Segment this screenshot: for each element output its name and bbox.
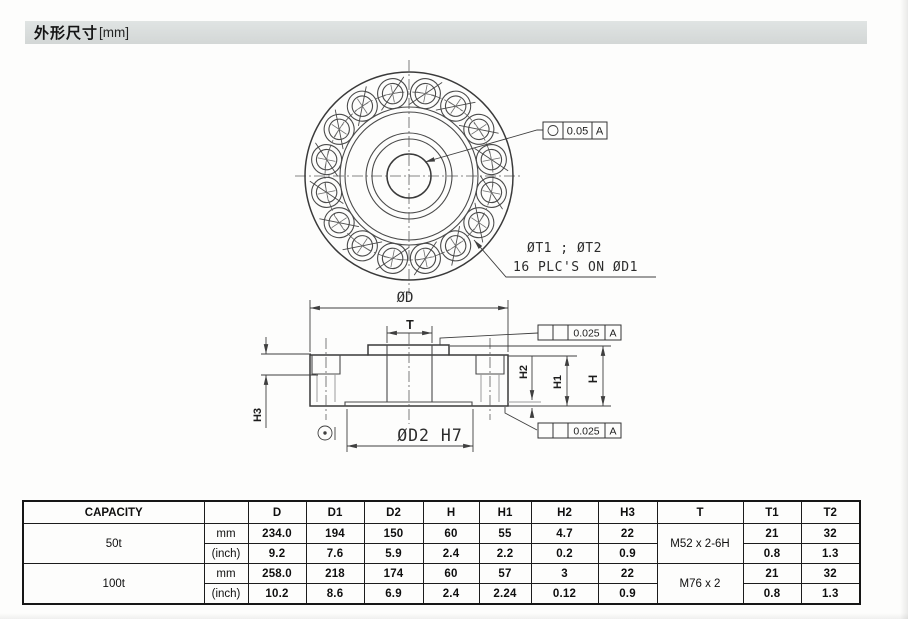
top-boss-outline [368, 345, 449, 355]
cell-h: 60 [423, 524, 479, 544]
cell-capacity-100t: 100t [23, 564, 204, 605]
cell-d1: 194 [306, 524, 364, 544]
th-d: D [248, 501, 306, 524]
th-t2: T2 [801, 501, 860, 524]
datasheet-page: 外形尺寸[mm] [0, 0, 908, 619]
tolerance-top-leader [440, 333, 538, 345]
th-t: T [657, 501, 743, 524]
cell-h1: 57 [479, 564, 531, 584]
cell-d: 258.0 [248, 564, 306, 584]
th-unit [204, 501, 248, 524]
dim-label-h1: H1 [552, 375, 564, 389]
dim-h1: H1 [508, 356, 577, 406]
cell-t1: 21 [743, 564, 801, 584]
cell-d: 9.2 [248, 544, 306, 564]
dim-label-od2: ØD2 H7 [397, 426, 463, 445]
cell-h3: 0.9 [598, 584, 657, 605]
tolerance-bottom-value: 0.025 [573, 426, 599, 438]
cell-h2: 3 [531, 564, 598, 584]
cell-d1: 8.6 [306, 584, 364, 605]
dim-h3: H3 [252, 337, 318, 428]
tolerance-bottom-datum: A [609, 426, 616, 438]
cell-unit: (inch) [204, 584, 248, 605]
cell-d: 234.0 [248, 524, 306, 544]
cell-h: 2.4 [423, 584, 479, 605]
cell-h3: 0.9 [598, 544, 657, 564]
cell-unit: mm [204, 564, 248, 584]
tolerance-frame-top: 0.025 A [538, 325, 621, 340]
cell-capacity-50t: 50t [23, 524, 204, 564]
table-header-row: CAPACITY D D1 D2 H H1 H2 H3 T T1 T2 [23, 501, 860, 524]
cell-h1: 2.2 [479, 544, 531, 564]
dim-label-h3: H3 [252, 408, 264, 422]
cell-thread-100t: M76 x 2 [657, 564, 743, 605]
th-d1: D1 [306, 501, 364, 524]
cell-t2: 1.3 [801, 584, 860, 605]
dim-label-t: T [406, 318, 414, 332]
tolerance-frame-bottom: 0.025 A [538, 423, 621, 438]
cell-h1: 55 [479, 524, 531, 544]
cell-h3: 22 [598, 524, 657, 544]
cell-d2: 5.9 [364, 544, 423, 564]
cell-t1: 21 [743, 524, 801, 544]
th-capacity: CAPACITY [23, 501, 204, 524]
circularity-value: 0.05 [567, 126, 588, 138]
cell-unit: (inch) [204, 544, 248, 564]
row-100t-mm: 100t mm 258.0 218 174 60 57 3 22 M76 x 2… [23, 564, 860, 584]
cell-h1: 2.24 [479, 584, 531, 605]
cell-h2: 0.2 [531, 544, 598, 564]
th-d2: D2 [364, 501, 423, 524]
cell-t1: 0.8 [743, 584, 801, 605]
cell-h2: 0.12 [531, 584, 598, 605]
dimension-table: CAPACITY D D1 D2 H H1 H2 H3 T T1 T2 50t … [22, 500, 861, 605]
cell-t2: 1.3 [801, 544, 860, 564]
cell-unit: mm [204, 524, 248, 544]
hole-note-line1: ØT1 ; ØT2 [527, 241, 602, 256]
cell-h2: 4.7 [531, 524, 598, 544]
dim-label-h2: H2 [518, 365, 530, 379]
tolerance-top-datum: A [609, 328, 616, 340]
th-t1: T1 [743, 501, 801, 524]
cell-d2: 174 [364, 564, 423, 584]
cell-t2: 32 [801, 524, 860, 544]
dim-bore: ØD2 H7 [318, 409, 473, 452]
cell-d2: 150 [364, 524, 423, 544]
cell-h: 60 [423, 564, 479, 584]
dim-h2: H2 [508, 356, 541, 417]
cell-d: 10.2 [248, 584, 306, 605]
top-view: 0.05 A ØT1 ; ØT2 16 PLC'S ON ØD1 [295, 60, 656, 295]
dimension-drawing: 0.05 A ØT1 ; ØT2 16 PLC'S ON ØD1 [0, 0, 908, 500]
cell-d2: 6.9 [364, 584, 423, 605]
tolerance-top-value: 0.025 [573, 328, 599, 340]
cell-thread-50t: M52 x 2-6H [657, 524, 743, 564]
dim-thread: T [387, 318, 432, 343]
th-h1: H1 [479, 501, 531, 524]
cell-d1: 218 [306, 564, 364, 584]
th-h: H [423, 501, 479, 524]
concentricity-icon [318, 426, 335, 440]
cell-h: 2.4 [423, 544, 479, 564]
dim-label-od: ØD [397, 290, 414, 306]
cell-t2: 32 [801, 564, 860, 584]
row-50t-mm: 50t mm 234.0 194 150 60 55 4.7 22 M52 x … [23, 524, 860, 544]
hole-note-line2: 16 PLC'S ON ØD1 [513, 260, 638, 275]
th-h3: H3 [598, 501, 657, 524]
cell-d1: 7.6 [306, 544, 364, 564]
cell-h3: 22 [598, 564, 657, 584]
dim-label-h: H [588, 375, 600, 383]
front-view: ØD T 0.025 A [252, 290, 621, 452]
th-h2: H2 [531, 501, 598, 524]
tolerance-frame-circularity: 0.05 A [543, 122, 607, 139]
circularity-datum: A [596, 126, 604, 138]
cell-t1: 0.8 [743, 544, 801, 564]
